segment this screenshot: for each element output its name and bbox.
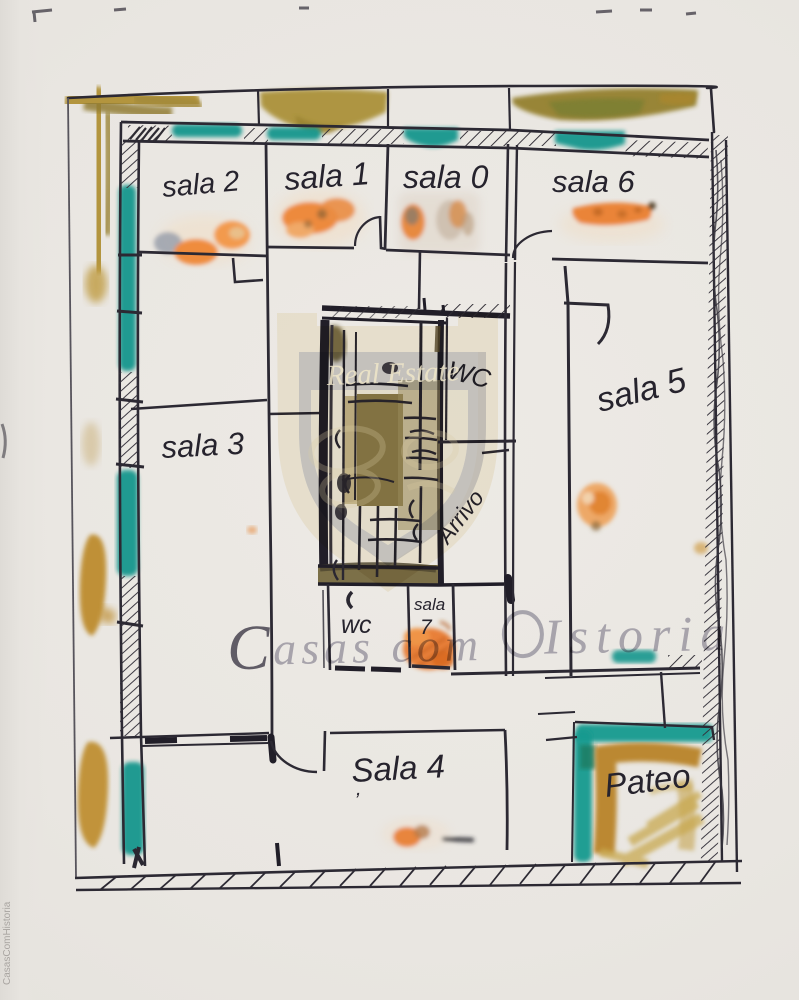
svg-text:sala 6: sala 6 [552, 164, 635, 199]
svg-text:sala 0: sala 0 [403, 159, 489, 195]
svg-text:,: , [356, 778, 362, 800]
svg-text:Sala 4: Sala 4 [350, 747, 445, 789]
svg-text:sala: sala [414, 595, 445, 614]
svg-text:C: C [226, 611, 271, 683]
svg-text:Istoria: Istoria [542, 605, 733, 665]
svg-text:CasasComHistoria: CasasComHistoria [2, 901, 13, 985]
svg-text:Real Estate: Real Estate [325, 355, 460, 392]
svg-text:sala 5: sala 5 [593, 361, 690, 420]
svg-text:sala 1: sala 1 [283, 155, 371, 197]
svg-text:sala 3: sala 3 [161, 426, 245, 465]
svg-text:sala 2: sala 2 [161, 165, 241, 204]
svg-text:asas com: asas com [273, 619, 484, 674]
